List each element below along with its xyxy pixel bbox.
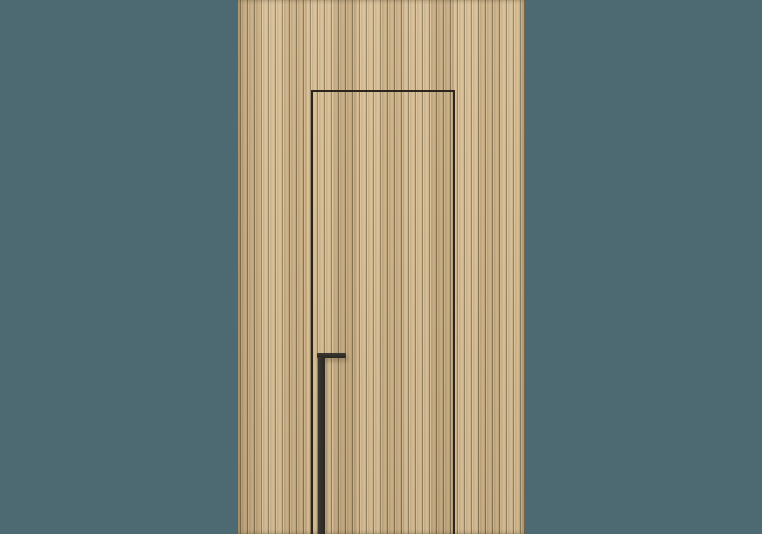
scene-background (0, 0, 762, 534)
wood-slat-wall-panel (237, 0, 525, 534)
door-edge-pull-handle (317, 353, 346, 534)
handle-vertical-bar (318, 357, 325, 534)
